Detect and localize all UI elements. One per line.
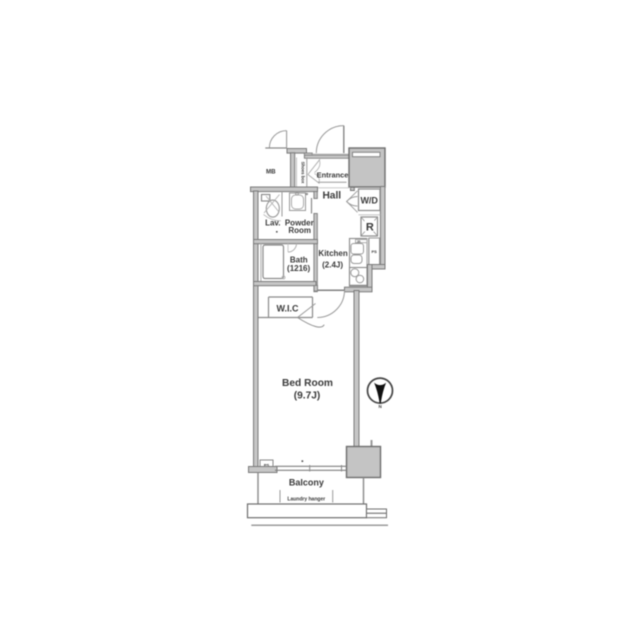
svg-text:Bed Room: Bed Room — [282, 378, 333, 389]
svg-text:R: R — [366, 221, 374, 233]
svg-text:(1216): (1216) — [287, 264, 310, 273]
svg-text:Laundry hanger: Laundry hanger — [287, 497, 325, 503]
svg-text:Kitchen: Kitchen — [318, 249, 347, 258]
svg-text:Room: Room — [288, 226, 311, 235]
svg-text:35: 35 — [357, 239, 361, 243]
svg-text:W.I.C: W.I.C — [277, 303, 299, 313]
svg-text:(2.4J): (2.4J) — [322, 260, 343, 269]
svg-text:Balcony: Balcony — [289, 478, 324, 488]
svg-text:W/D: W/D — [360, 195, 378, 205]
svg-text:PS: PS — [372, 249, 378, 254]
svg-text:MB: MB — [266, 169, 276, 176]
svg-text:(9.7J): (9.7J) — [294, 390, 321, 401]
svg-text:Shoes box: Shoes box — [300, 162, 305, 184]
svg-text:Hall: Hall — [322, 190, 341, 201]
svg-text:N: N — [378, 404, 381, 409]
svg-text:Entrance: Entrance — [317, 171, 349, 180]
